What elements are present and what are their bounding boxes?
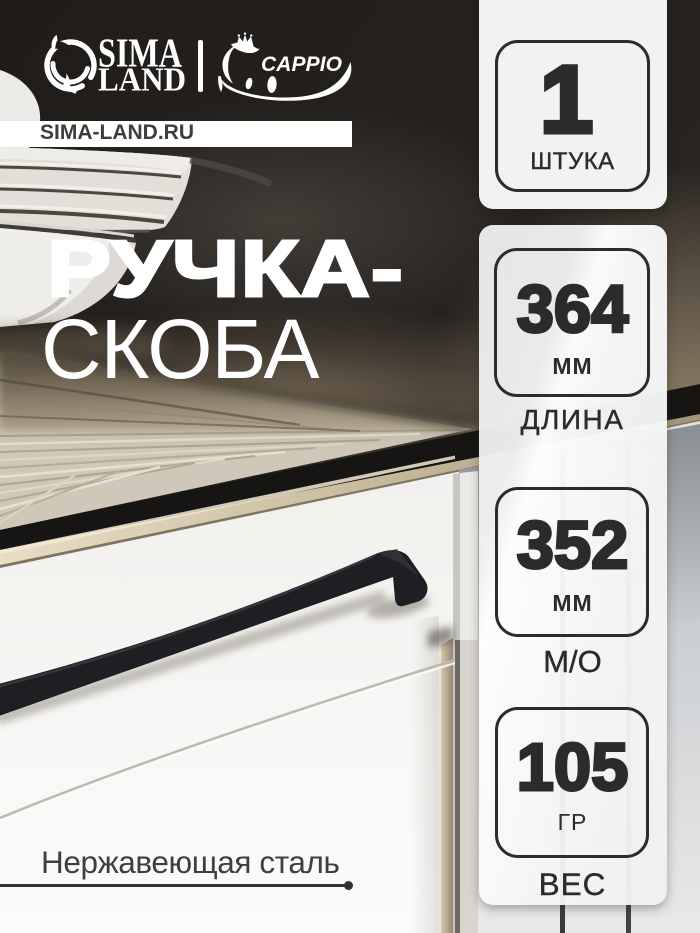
- svg-text:LAND: LAND: [98, 62, 186, 99]
- svg-text:CAPPIO: CAPPIO: [261, 53, 342, 76]
